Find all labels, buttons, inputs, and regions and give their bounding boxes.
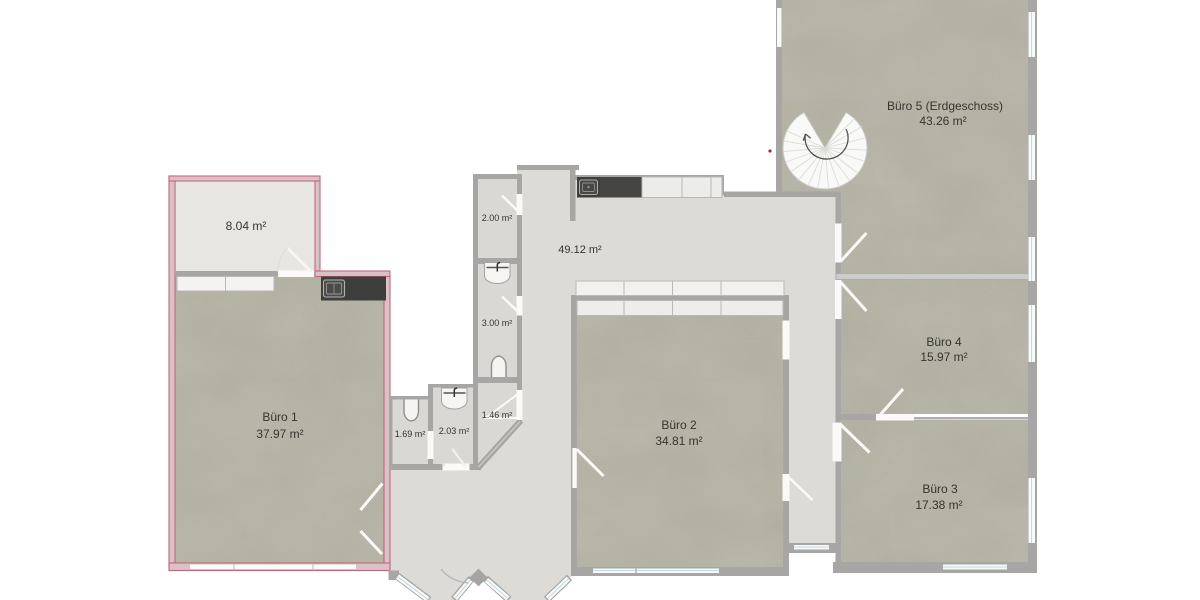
svg-text:Büro 5 (Erdgeschoss): Büro 5 (Erdgeschoss) bbox=[887, 99, 1003, 113]
svg-text:Büro 4: Büro 4 bbox=[926, 335, 962, 349]
svg-text:17.38 m²: 17.38 m² bbox=[915, 498, 962, 512]
svg-text:8.04 m²: 8.04 m² bbox=[226, 219, 267, 233]
svg-text:Büro 2: Büro 2 bbox=[661, 418, 697, 432]
svg-text:1.46 m²: 1.46 m² bbox=[482, 410, 513, 420]
svg-text:2.03 m²: 2.03 m² bbox=[439, 426, 470, 436]
svg-text:2.00 m²: 2.00 m² bbox=[482, 213, 513, 223]
svg-text:34.81 m²: 34.81 m² bbox=[655, 434, 702, 448]
svg-text:3.00 m²: 3.00 m² bbox=[482, 318, 513, 328]
svg-text:Büro 1: Büro 1 bbox=[262, 410, 298, 424]
svg-text:1.69 m²: 1.69 m² bbox=[395, 429, 426, 439]
svg-text:43.26 m²: 43.26 m² bbox=[919, 114, 966, 128]
svg-text:37.97 m²: 37.97 m² bbox=[256, 427, 303, 441]
svg-text:15.97 m²: 15.97 m² bbox=[920, 350, 967, 364]
svg-text:49.12 m²: 49.12 m² bbox=[558, 244, 602, 256]
svg-text:Büro 3: Büro 3 bbox=[922, 482, 958, 496]
